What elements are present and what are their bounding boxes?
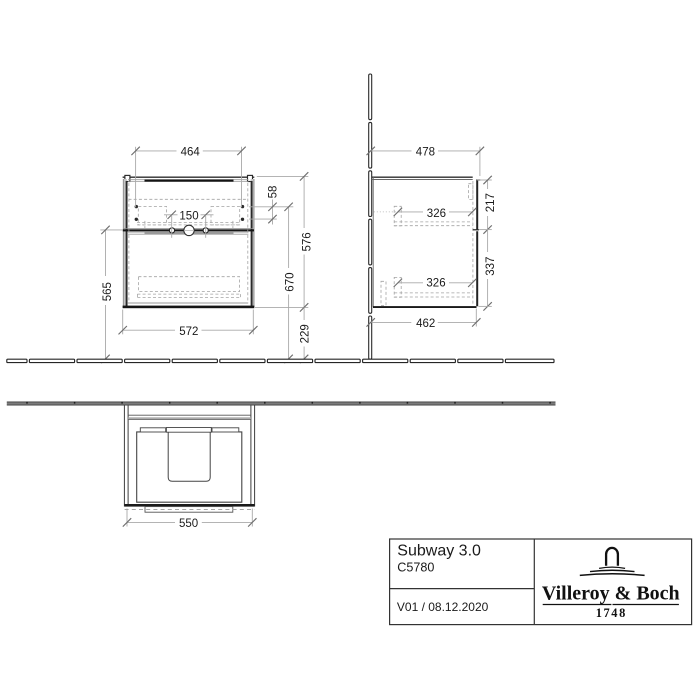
svg-text:576: 576 [301, 232, 313, 251]
svg-text:478: 478 [416, 146, 435, 158]
svg-text:565: 565 [102, 282, 114, 301]
svg-text:326: 326 [427, 208, 446, 220]
svg-text:464: 464 [181, 147, 201, 159]
svg-text:150: 150 [179, 210, 198, 222]
svg-text:Villeroy & Boch: Villeroy & Boch [542, 582, 680, 604]
svg-text:217: 217 [485, 193, 497, 212]
svg-text:326: 326 [426, 277, 445, 289]
svg-text:572: 572 [179, 326, 198, 338]
svg-text:550: 550 [179, 518, 198, 530]
svg-text:C5780: C5780 [397, 560, 434, 574]
svg-text:462: 462 [416, 318, 435, 330]
svg-text:670: 670 [284, 273, 296, 292]
svg-text:1748: 1748 [596, 606, 627, 620]
svg-text:Subway 3.0: Subway 3.0 [397, 543, 481, 560]
svg-text:337: 337 [485, 257, 497, 276]
svg-text:58: 58 [268, 186, 280, 199]
svg-text:V01 / 08.12.2020: V01 / 08.12.2020 [397, 600, 489, 614]
svg-text:229: 229 [300, 324, 312, 343]
